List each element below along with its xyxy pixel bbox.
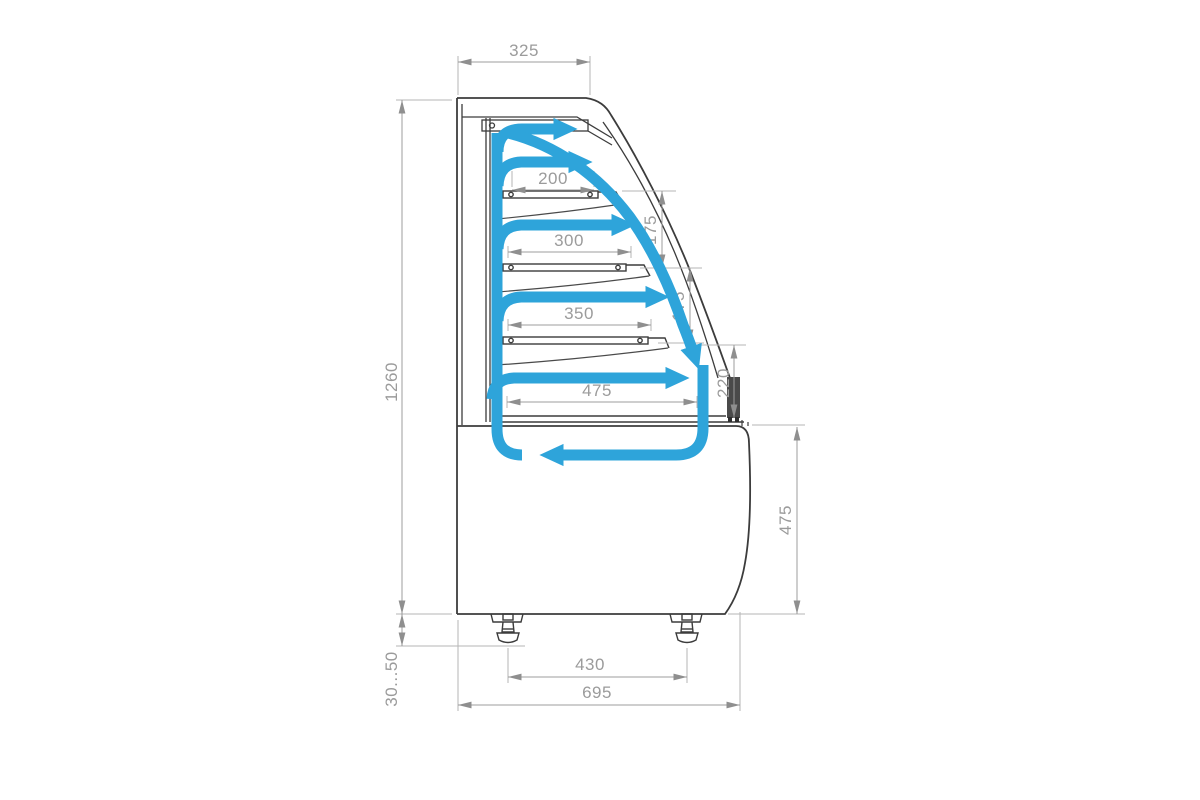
base-lip-detail xyxy=(742,420,748,426)
airflow xyxy=(492,129,703,455)
dim-label-total-height: 1260 xyxy=(382,362,401,402)
dim-top-depth: 325 xyxy=(458,41,590,95)
airflow-deck-arrow xyxy=(492,378,668,399)
dim-label-shelf1-depth: 200 xyxy=(538,169,568,188)
shelf-2-under-curve xyxy=(497,276,649,292)
shelf-2 xyxy=(497,264,650,292)
canopy-bevel-line xyxy=(588,131,612,145)
dim-label-shelf3-depth: 350 xyxy=(564,304,594,323)
dim-feet-spacing: 430 xyxy=(508,648,687,683)
dim-shelf2-depth: 300 xyxy=(508,231,631,258)
dim-label-overall-depth: 695 xyxy=(582,683,612,702)
dim-label-top-depth: 325 xyxy=(509,41,539,60)
dim-shelf3-depth: 350 xyxy=(508,304,651,331)
dim-deck-depth: 475 xyxy=(507,381,697,408)
dim-feet-range: 30...50 xyxy=(382,614,525,707)
shelf-3-under-curve xyxy=(497,348,668,365)
glass-inner-curve xyxy=(603,122,718,378)
shelf-1-under-curve xyxy=(497,204,622,219)
leg-left xyxy=(491,614,523,643)
shelf-3 xyxy=(497,337,669,365)
dim-label-feet-range: 30...50 xyxy=(382,651,401,707)
dim-label-base-height: 475 xyxy=(776,505,795,535)
dim-label-front-sill-height: 220 xyxy=(714,368,733,398)
diagram-canvas: 325 1260 30...50 200 300 xyxy=(0,0,1200,800)
dim-label-deck-depth: 475 xyxy=(582,381,612,400)
dim-total-height: 1260 xyxy=(382,100,452,614)
dim-label-shelf2-depth: 300 xyxy=(554,231,584,250)
dim-label-feet-spacing: 430 xyxy=(575,655,605,674)
drawing-page: 325 1260 30...50 200 300 xyxy=(0,0,1200,800)
leg-right xyxy=(670,614,702,643)
legs xyxy=(491,614,702,643)
